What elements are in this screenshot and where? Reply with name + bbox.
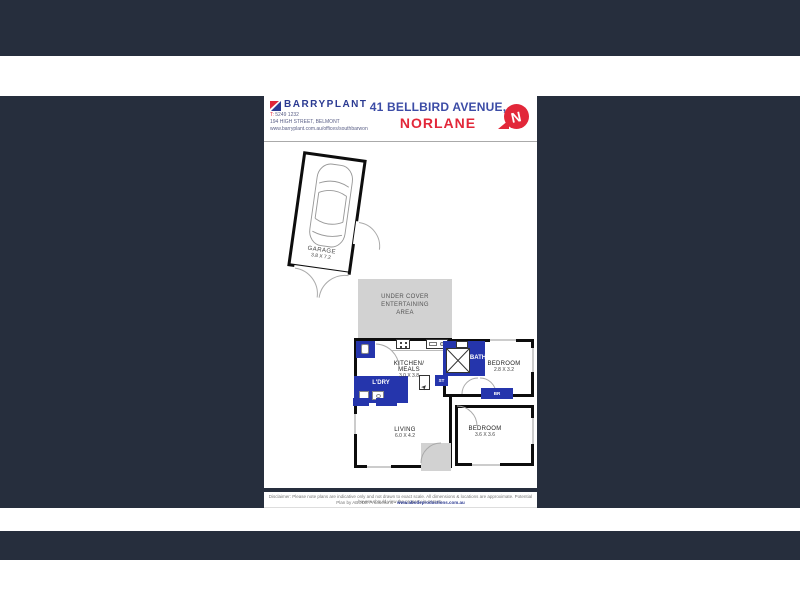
phone-number: 5249 1232	[275, 112, 299, 118]
hall-cupboard-2	[376, 398, 397, 406]
kitchen-dims: 3.0 X 3.8	[382, 373, 436, 379]
agency-contact-block: T: 5249 1232 194 HIGH STREET, BELMONT ww…	[270, 112, 368, 133]
agency-street: 194 HIGH STREET, BELMONT	[270, 119, 368, 126]
robe-br: BR	[481, 388, 513, 399]
header-divider	[264, 141, 537, 142]
bedroom1-label: BEDROOM 2.8 X 3.2	[476, 361, 532, 373]
floorplan-page: BARRYPLANT T: 5249 1232 194 HIGH STREET,…	[264, 96, 537, 508]
garage-side-door-arc	[356, 221, 385, 250]
barryplant-flag-icon	[269, 100, 282, 112]
plan-credit: Plan by ABODE Productions - www.abodepro…	[267, 500, 534, 505]
bedroom2-dims: 3.6 X 3.6	[454, 432, 516, 438]
footer-divider	[264, 488, 537, 492]
credit-text: Plan by ABODE Productions -	[336, 500, 397, 505]
letterbox-left-column	[0, 96, 264, 508]
letterbox-right-column	[537, 96, 800, 508]
store-label: ST	[435, 378, 448, 383]
bedroom2-label: BEDROOM 3.6 X 3.6	[454, 426, 516, 438]
agency-brand: BARRYPLANT	[284, 99, 368, 110]
kitchen-counter-line	[392, 350, 450, 351]
room-garage: GARAGE 3.8 X 7.2	[287, 151, 367, 275]
outdoor-line1: UNDER COVER	[358, 293, 452, 301]
room-store: ST	[435, 375, 448, 386]
letterbox-bottom-band	[0, 531, 800, 560]
phone-label: T:	[270, 112, 274, 118]
agency-phone: T: 5249 1232	[270, 112, 368, 119]
car-icon	[303, 160, 359, 251]
property-address: 41 BELLBIRD AVENUE, NORLANE	[364, 100, 512, 131]
living-dims: 6.0 X 4.2	[375, 433, 435, 439]
window	[490, 337, 516, 343]
area-under-cover-entertaining: UNDER COVER ENTERTAINING AREA	[358, 279, 452, 338]
outdoor-line3: AREA	[358, 309, 452, 317]
letterbox-top-band	[0, 0, 800, 56]
property-address-line2: NORLANE	[364, 115, 512, 131]
credit-url: www.abodeproductions.com.au	[397, 500, 465, 505]
toilet-icon	[361, 344, 369, 354]
north-letter: N	[510, 108, 523, 126]
kitchen-label: KITCHEN/ MEALS 3.0 X 3.8	[382, 361, 436, 379]
robe-label: BR	[481, 391, 513, 396]
north-compass-icon: N	[504, 104, 529, 129]
living-label: LIVING 6.0 X 4.2	[375, 427, 435, 439]
bedroom1-dims: 2.8 X 3.2	[476, 367, 532, 373]
property-address-line1: 41 BELLBIRD AVENUE,	[364, 100, 512, 114]
stove-icon	[396, 339, 410, 349]
bath-toilet-icon	[456, 341, 468, 348]
agency-website: www.barryplant.com.au/offices/southbarwo…	[270, 126, 368, 133]
outdoor-line2: ENTERTAINING	[358, 301, 452, 309]
room-wc	[356, 341, 375, 358]
laundry-label: L'DRY	[354, 380, 408, 386]
hall-cupboard-1	[353, 398, 369, 406]
